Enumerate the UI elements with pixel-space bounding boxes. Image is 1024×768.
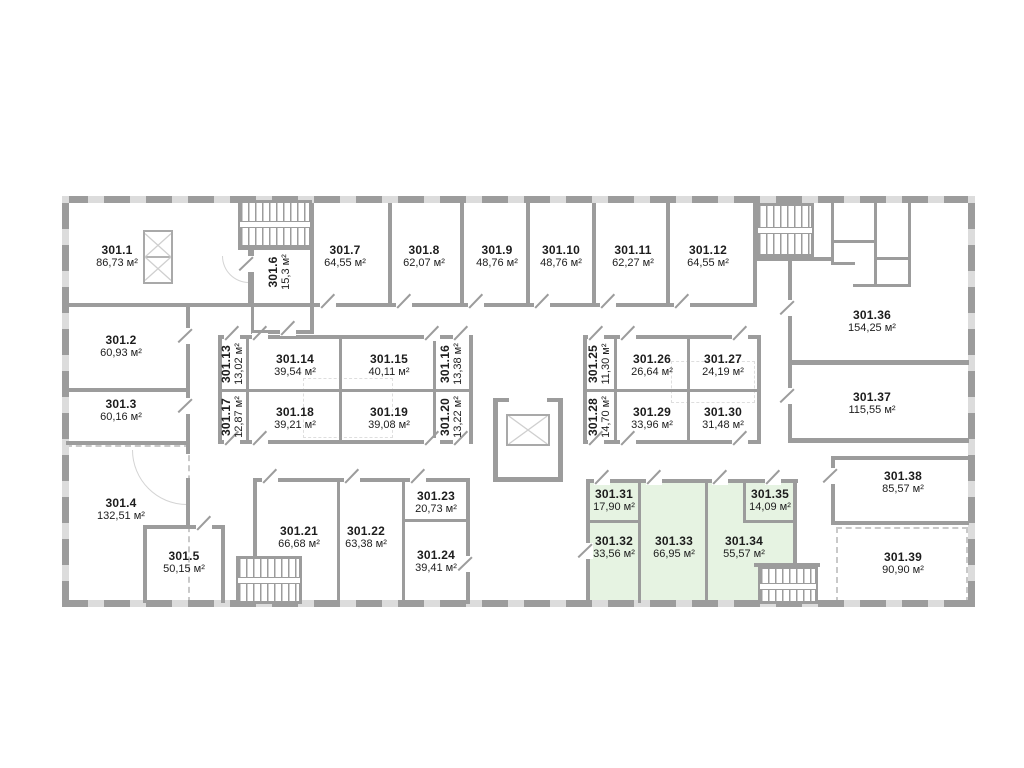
wall (687, 335, 690, 444)
wall (402, 478, 405, 604)
wall (831, 203, 834, 265)
room-id: 301.14 (274, 353, 316, 366)
room-301-34[interactable]: 301.3455,57 м² (723, 535, 765, 561)
room-id: 301.15 (369, 353, 410, 366)
wall (246, 335, 249, 444)
door (585, 543, 593, 559)
room-id: 301.20 (439, 396, 452, 438)
stairs (758, 566, 818, 604)
room-id: 301.8 (403, 244, 445, 257)
wall (433, 335, 436, 444)
room-id: 301.35 (749, 488, 791, 501)
room-area: 13,38 м² (452, 343, 464, 385)
room-301-35[interactable]: 301.3514,09 м² (749, 488, 791, 514)
door (588, 333, 604, 341)
room-area: 66,68 м² (278, 538, 320, 550)
room-301-26[interactable]: 301.2626,64 м² (631, 353, 673, 379)
door (765, 477, 781, 485)
room-area: 14,70 м² (600, 396, 612, 438)
wall-outer-left (62, 196, 69, 607)
room-area: 64,55 м² (687, 257, 729, 269)
door (344, 476, 360, 484)
room-301-10[interactable]: 301.1048,76 м² (540, 244, 582, 270)
room-area: 60,93 м² (100, 347, 142, 359)
door (453, 438, 469, 446)
room-id: 301.29 (631, 406, 673, 419)
room-301-29[interactable]: 301.2933,96 м² (631, 406, 673, 432)
room-301-16[interactable]: 301.1613,38 м² (439, 343, 465, 385)
wall (493, 398, 509, 402)
door-arc (222, 256, 249, 283)
wall (388, 203, 392, 305)
door (185, 328, 193, 344)
room-id: 301.1 (96, 244, 138, 257)
room-id: 301.3 (100, 398, 142, 411)
door (646, 477, 662, 485)
room-area: 24,19 м² (702, 366, 744, 378)
room-301-17[interactable]: 301.1712,87 м² (220, 396, 246, 438)
floor-plan: 301.186,73 м² 301.260,93 м² 301.360,16 м… (0, 0, 1024, 768)
room-301-11[interactable]: 301.1162,27 м² (612, 244, 654, 270)
room-area: 33,56 м² (593, 548, 635, 560)
wall (592, 203, 596, 305)
wall (793, 479, 797, 571)
door (600, 301, 616, 309)
wall (466, 478, 470, 604)
room-301-12[interactable]: 301.1264,55 м² (687, 244, 729, 270)
room-id: 301.25 (587, 344, 600, 385)
room-area: 13,22 м² (452, 396, 464, 438)
room-area: 62,27 м² (612, 257, 654, 269)
room-id: 301.21 (278, 525, 320, 538)
wall (547, 398, 563, 402)
room-id: 301.34 (723, 535, 765, 548)
wall (526, 203, 530, 305)
room-id: 301.32 (593, 535, 635, 548)
room-area: 66,95 м² (653, 548, 695, 560)
room-301-19[interactable]: 301.1939,08 м² (368, 406, 410, 432)
room-id: 301.19 (368, 406, 410, 419)
room-id: 301.31 (593, 488, 635, 501)
room-id: 301.39 (882, 551, 924, 564)
elevator-shaft (506, 414, 550, 446)
wall (143, 525, 147, 603)
room-id: 301.17 (220, 396, 233, 438)
room-301-18[interactable]: 301.1839,21 м² (274, 406, 316, 432)
room-id: 301.4 (97, 497, 145, 510)
room-301-6[interactable]: 301.615,3 м² (267, 254, 293, 290)
door (732, 333, 748, 341)
room-area: 40,11 м² (369, 366, 410, 378)
room-301-38[interactable]: 301.3885,57 м² (882, 470, 924, 496)
room-id: 301.33 (653, 535, 695, 548)
wall (469, 335, 473, 444)
room-area: 60,16 м² (100, 411, 142, 423)
room-id: 301.16 (439, 343, 452, 385)
wall (705, 479, 708, 603)
wall (831, 456, 835, 525)
room-301-20[interactable]: 301.2013,22 м² (439, 396, 465, 438)
room-301-25[interactable]: 301.2511,30 м² (587, 344, 613, 385)
room-301-8[interactable]: 301.862,07 м² (403, 244, 445, 270)
room-id: 301.26 (631, 353, 673, 366)
door (594, 477, 610, 485)
room-id: 301.7 (324, 244, 366, 257)
room-area: 39,08 м² (368, 419, 410, 431)
room-area: 20,73 м² (415, 503, 457, 515)
room-301-5[interactable]: 301.550,15 м² (163, 550, 205, 576)
wall (583, 389, 761, 392)
room-id: 301.28 (587, 396, 600, 438)
room-id: 301.13 (220, 343, 233, 385)
room-area: 115,55 м² (848, 404, 895, 416)
room-area: 33,96 м² (631, 419, 673, 431)
wall (638, 479, 641, 603)
door (196, 523, 212, 531)
room-301-28[interactable]: 301.2814,70 м² (587, 396, 613, 438)
room-area: 26,64 м² (631, 366, 673, 378)
wall (908, 203, 911, 287)
room-area: 15,3 м² (280, 254, 292, 290)
elevator-x-icon (508, 416, 548, 444)
room-id: 301.24 (415, 549, 457, 562)
room-area: 14,09 м² (749, 501, 791, 513)
room-301-4[interactable]: 301.4132,51 м² (97, 497, 145, 523)
room-area: 86,73 м² (96, 257, 138, 269)
room-301-15[interactable]: 301.1540,11 м² (369, 353, 410, 379)
door (534, 301, 550, 309)
room-id: 301.11 (612, 244, 654, 257)
room-301-24[interactable]: 301.2439,41 м² (415, 549, 457, 575)
room-301-2[interactable]: 301.260,93 м² (100, 334, 142, 360)
door (252, 438, 268, 446)
door (620, 438, 636, 446)
room-id: 301.10 (540, 244, 582, 257)
room-area: 85,57 м² (882, 483, 924, 495)
room-301-33[interactable]: 301.3366,95 м² (653, 535, 695, 561)
wall (253, 478, 257, 562)
room-area: 11,30 м² (600, 344, 612, 385)
room-301-32[interactable]: 301.3233,56 м² (593, 535, 635, 561)
room-area: 48,76 м² (476, 257, 518, 269)
room-id: 301.37 (848, 391, 895, 404)
wall (493, 398, 498, 482)
room-301-27[interactable]: 301.2724,19 м² (702, 353, 744, 379)
room-id: 301.23 (415, 490, 457, 503)
door (185, 398, 193, 414)
wall (558, 398, 563, 482)
room-area: 39,41 м² (415, 562, 457, 574)
wall (757, 335, 761, 444)
room-id: 301.38 (882, 470, 924, 483)
wall (743, 520, 796, 523)
wall (743, 479, 746, 523)
door (620, 333, 636, 341)
room-area: 39,54 м² (274, 366, 316, 378)
door (465, 556, 473, 572)
door (787, 388, 795, 404)
wall (339, 335, 342, 444)
room-area: 64,55 м² (324, 257, 366, 269)
wall-outer-bottom (62, 600, 975, 607)
wall (831, 240, 877, 243)
room-301-7[interactable]: 301.764,55 м² (324, 244, 366, 270)
door (410, 476, 426, 484)
room-301-37[interactable]: 301.37115,55 м² (848, 391, 895, 417)
wall (253, 478, 470, 482)
door (224, 438, 240, 446)
room-area: 63,38 м² (345, 538, 387, 550)
door (468, 301, 484, 309)
wall (586, 479, 590, 603)
room-area: 90,90 м² (882, 564, 924, 576)
room-area: 154,25 м² (848, 322, 896, 334)
door (830, 468, 838, 484)
door (396, 301, 412, 309)
room-301-30[interactable]: 301.3031,48 м² (702, 406, 744, 432)
room-area: 50,15 м² (163, 563, 205, 575)
door (588, 438, 604, 446)
door (252, 333, 268, 341)
elevator-x-icon (145, 232, 171, 282)
wall (788, 438, 969, 443)
room-id: 301.12 (687, 244, 729, 257)
wall (831, 262, 855, 265)
wall (853, 284, 911, 287)
wall (66, 441, 190, 445)
wall (756, 257, 818, 261)
wall (586, 520, 641, 523)
room-301-13[interactable]: 301.1313,02 м² (220, 343, 246, 385)
room-301-23[interactable]: 301.2320,73 м² (415, 490, 457, 516)
room-301-21[interactable]: 301.2166,68 м² (278, 525, 320, 551)
wall (874, 257, 911, 260)
door (712, 477, 728, 485)
wall (831, 521, 969, 525)
room-301-39[interactable]: 301.3990,90 м² (882, 551, 924, 577)
room-301-31[interactable]: 301.3117,90 м² (593, 488, 635, 514)
wall (460, 203, 464, 305)
wall (143, 525, 225, 529)
door (732, 438, 748, 446)
door (787, 300, 795, 316)
door (262, 476, 278, 484)
room-area: 12,87 м² (233, 396, 245, 438)
room-id: 301.9 (476, 244, 518, 257)
room-area: 48,76 м² (540, 257, 582, 269)
door (246, 256, 254, 272)
door (424, 333, 440, 341)
wall (666, 203, 670, 305)
room-301-1[interactable]: 301.186,73 м² (96, 244, 138, 270)
wall (614, 335, 617, 444)
room-301-22[interactable]: 301.2263,38 м² (345, 525, 387, 551)
room-301-3[interactable]: 301.360,16 м² (100, 398, 142, 424)
room-area: 13,02 м² (233, 343, 245, 385)
room-area: 62,07 м² (403, 257, 445, 269)
room-id: 301.22 (345, 525, 387, 538)
room-id: 301.2 (100, 334, 142, 347)
door (320, 301, 336, 309)
wall (66, 388, 190, 392)
stairs (236, 556, 302, 604)
wall (874, 203, 877, 287)
room-id: 301.36 (848, 309, 896, 322)
wall-outer-top (62, 196, 975, 203)
room-id: 301.6 (267, 254, 280, 290)
room-id: 301.30 (702, 406, 744, 419)
elevator-shaft (143, 230, 173, 284)
room-id: 301.27 (702, 353, 744, 366)
door (424, 438, 440, 446)
door (453, 333, 469, 341)
room-area: 132,51 м² (97, 510, 145, 522)
room-id: 301.5 (163, 550, 205, 563)
room-area: 55,57 м² (723, 548, 765, 560)
door (280, 328, 296, 336)
wall (788, 360, 969, 365)
room-id: 301.18 (274, 406, 316, 419)
room-301-36[interactable]: 301.36154,25 м² (848, 309, 896, 335)
wall (831, 456, 969, 460)
door (674, 301, 690, 309)
room-301-9[interactable]: 301.948,76 м² (476, 244, 518, 270)
wall (221, 525, 225, 603)
wall (814, 257, 834, 261)
room-area: 39,21 м² (274, 419, 316, 431)
door (224, 333, 240, 341)
wall (402, 519, 469, 522)
wall (186, 478, 190, 529)
wall (493, 477, 563, 482)
room-area: 17,90 м² (593, 501, 635, 513)
room-area: 31,48 м² (702, 419, 744, 431)
stairs (756, 203, 814, 257)
stairs (238, 200, 312, 248)
wall (337, 478, 340, 604)
room-301-14[interactable]: 301.1439,54 м² (274, 353, 316, 379)
wall-outer-right (968, 196, 975, 607)
